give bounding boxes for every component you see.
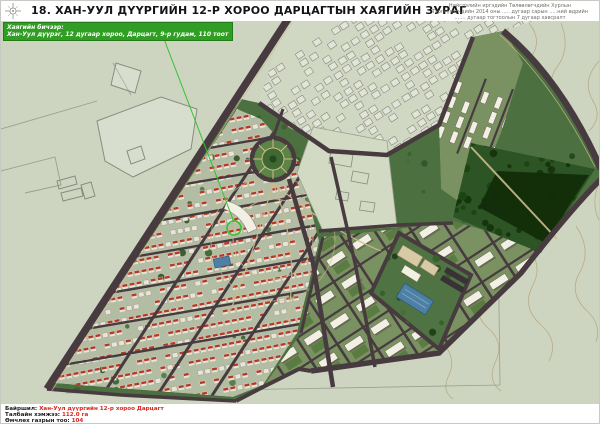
- plot-count-line: Өмчлөх газрын тоо: 104: [5, 418, 164, 424]
- resolution-annex-note: Нийслэлийн иргэдийн Төлөөлөгчдийн Хурлын…: [425, 3, 595, 21]
- address-label-title: Хаягийн бичээр:: [7, 24, 228, 31]
- map-info-block: Байршил: Хан-Уул дүүргийн 12-р хороо Дар…: [5, 406, 164, 424]
- address-label-value: Хан-Уул дүүрэг, 12 дугаар хороо, Дарцагт…: [7, 31, 228, 38]
- city-plan-map: [1, 1, 600, 424]
- page-title: 18. ХАН-УУЛ ДҮҮРГИЙН 12-Р ХОРОО ДАРЦАГТЫ…: [31, 4, 466, 17]
- plot-count-label: Өмчлөх газрын тоо:: [5, 418, 70, 424]
- address-label-box: Хаягийн бичээр: Хан-Уул дүүрэг, 12 дугаа…: [3, 22, 233, 41]
- addressing-map-page: 18. ХАН-УУЛ ДҮҮРГИЙН 12-Р ХОРОО ДАРЦАГТЫ…: [0, 0, 600, 424]
- compass-rose-icon: [4, 2, 22, 20]
- note-line-3: ....... дугаар тогтоолын 7 дугаар хавсра…: [425, 15, 595, 21]
- plot-count-value: 104: [72, 418, 84, 424]
- area-label: Талбайн хэмжээ:: [5, 412, 60, 418]
- area-value: 112.0 га: [62, 412, 88, 418]
